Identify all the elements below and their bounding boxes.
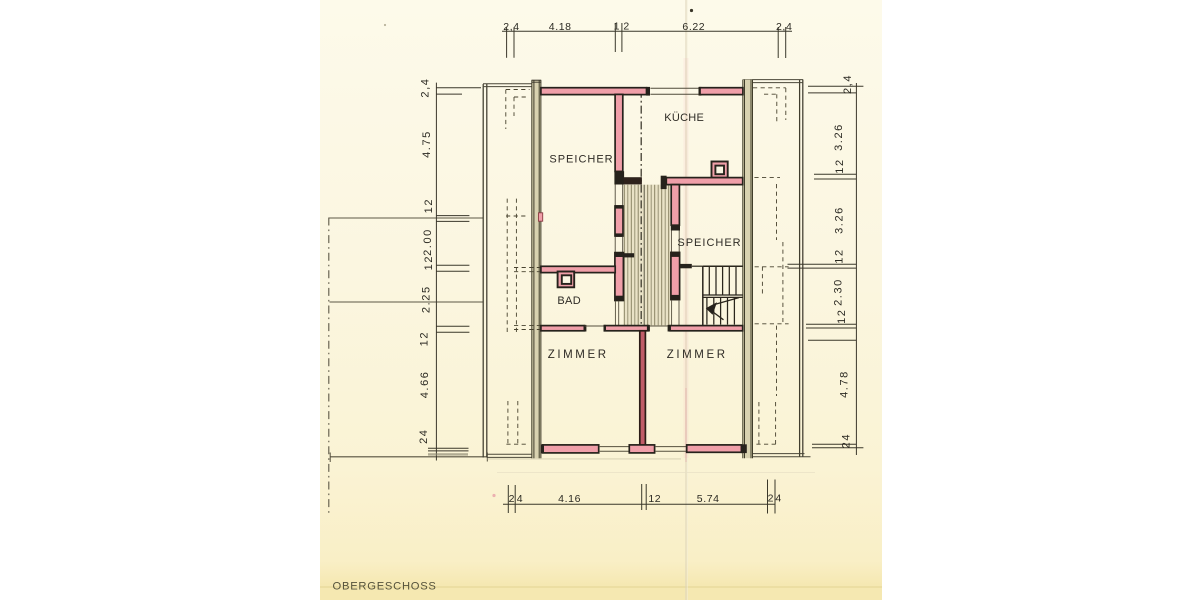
svg-text:ZIMMER: ZIMMER bbox=[667, 349, 728, 361]
svg-text:1: 1 bbox=[614, 21, 620, 33]
svg-text:2: 2 bbox=[509, 493, 515, 505]
svg-text:24: 24 bbox=[418, 428, 430, 443]
svg-text:12: 12 bbox=[419, 331, 431, 346]
svg-text:2.00: 2.00 bbox=[422, 228, 434, 256]
svg-text:12: 12 bbox=[648, 493, 661, 505]
svg-text:3.26: 3.26 bbox=[833, 123, 845, 151]
svg-text:4.18: 4.18 bbox=[549, 21, 572, 33]
svg-text:12: 12 bbox=[834, 158, 846, 173]
svg-text:4: 4 bbox=[775, 493, 781, 505]
svg-text:2: 2 bbox=[623, 20, 629, 32]
svg-text:4.16: 4.16 bbox=[558, 493, 581, 505]
svg-text:SPEICHER: SPEICHER bbox=[549, 153, 613, 165]
svg-text:OBERGESCHOSS: OBERGESCHOSS bbox=[333, 581, 437, 593]
svg-text:2: 2 bbox=[768, 493, 774, 505]
svg-text:4.66: 4.66 bbox=[419, 370, 431, 398]
svg-text:12: 12 bbox=[836, 308, 848, 323]
svg-text:ZIMMER: ZIMMER bbox=[548, 349, 609, 361]
svg-text:2,4: 2,4 bbox=[842, 74, 854, 94]
svg-text:2,4: 2,4 bbox=[503, 21, 519, 33]
svg-text:6.22: 6.22 bbox=[682, 21, 705, 33]
svg-text:2.25: 2.25 bbox=[421, 285, 433, 313]
svg-text:BAD: BAD bbox=[557, 295, 581, 307]
svg-text:24: 24 bbox=[841, 433, 853, 448]
svg-text:2,4: 2,4 bbox=[419, 78, 431, 98]
svg-text:SPEICHER: SPEICHER bbox=[677, 237, 741, 249]
svg-text:5.74: 5.74 bbox=[697, 493, 720, 505]
svg-text:12: 12 bbox=[423, 255, 435, 270]
svg-text:4.75: 4.75 bbox=[421, 130, 433, 158]
svg-text:4.78: 4.78 bbox=[839, 370, 851, 398]
svg-text:12: 12 bbox=[423, 198, 435, 213]
svg-text:2,4: 2,4 bbox=[776, 21, 792, 33]
svg-text:2.30: 2.30 bbox=[833, 278, 845, 306]
svg-text:3.26: 3.26 bbox=[834, 206, 846, 234]
svg-text:KÜCHE: KÜCHE bbox=[664, 112, 704, 124]
svg-text:12: 12 bbox=[834, 248, 846, 263]
svg-text:4: 4 bbox=[517, 493, 523, 505]
